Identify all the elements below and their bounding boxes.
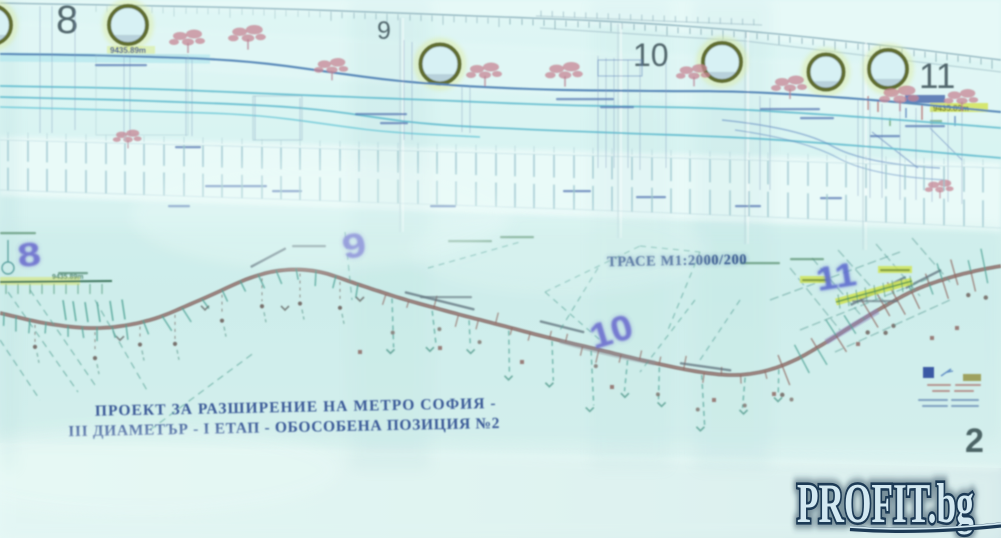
svg-text:PROFIT.bg: PROFIT.bg [797, 473, 974, 535]
